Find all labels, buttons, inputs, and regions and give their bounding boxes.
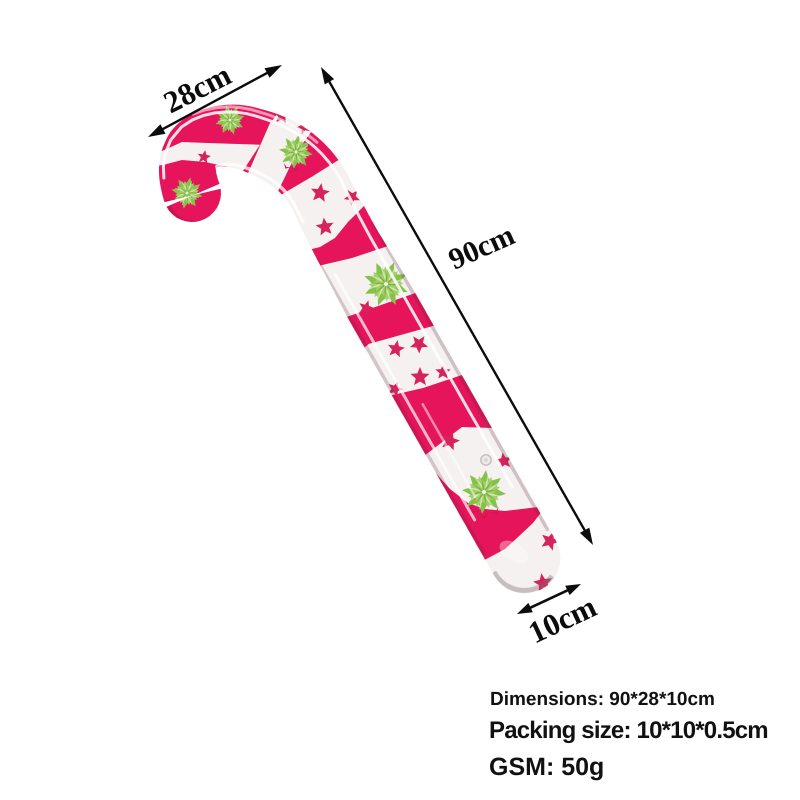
svg-text:Packing size: 10*10*0.5cm: Packing size: 10*10*0.5cm — [489, 717, 768, 744]
svg-text:GSM: 50g: GSM: 50g — [489, 753, 604, 781]
svg-text:Dimensions: 90*28*10cm: Dimensions: 90*28*10cm — [490, 689, 715, 710]
